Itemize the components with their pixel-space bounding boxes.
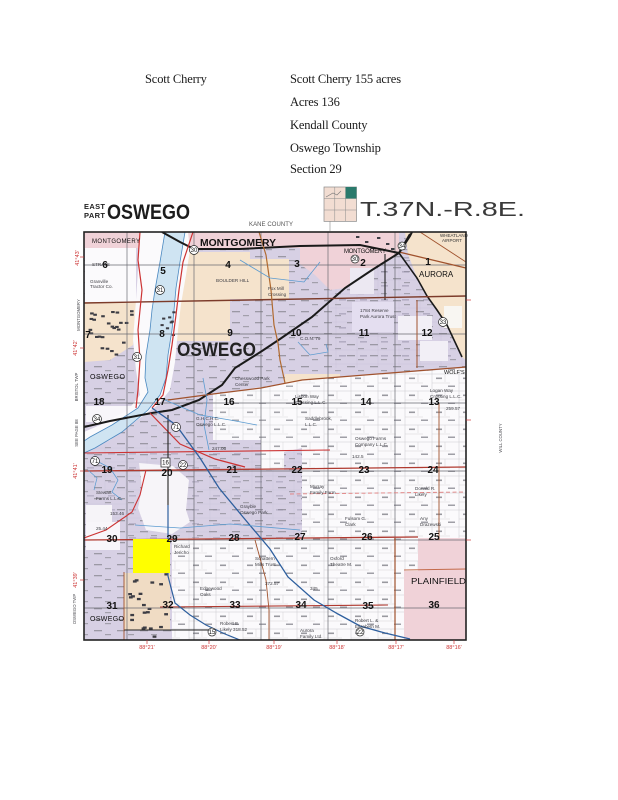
svg-text:PART: PART (84, 211, 105, 220)
svg-text:BOULDER HILL: BOULDER HILL (216, 278, 250, 283)
svg-text:88°16': 88°16' (446, 645, 462, 651)
svg-text:9: 9 (227, 328, 233, 339)
svg-text:26: 26 (361, 532, 373, 543)
svg-text:28: 28 (228, 533, 240, 544)
svg-text:Theatre M.: Theatre M. (330, 562, 352, 567)
svg-text:C.O.N. 79: C.O.N. 79 (300, 336, 321, 341)
svg-text:35: 35 (362, 601, 374, 612)
svg-text:34: 34 (399, 244, 406, 250)
svg-text:Fox Mill: Fox Mill (268, 286, 284, 291)
svg-text:Robert L. &: Robert L. & (355, 618, 378, 623)
svg-text:372.57: 372.57 (265, 581, 279, 586)
svg-text:OSWEGO TWP: OSWEGO TWP (72, 594, 77, 625)
svg-text:Any: Any (420, 516, 429, 521)
svg-text:WILL COUNTY: WILL COUNTY (498, 423, 503, 452)
svg-text:BRISTOL TWP: BRISTOL TWP (74, 372, 79, 401)
svg-text:EAST: EAST (84, 202, 105, 211)
svg-text:71: 71 (173, 425, 180, 431)
svg-text:Jericho: Jericho (174, 550, 189, 555)
svg-text:12: 12 (421, 328, 433, 339)
svg-text:Park Aurora Trust: Park Aurora Trust (360, 314, 396, 319)
svg-text:Center: Center (235, 382, 249, 387)
svg-text:23: 23 (358, 465, 370, 476)
svg-text:Oxford: Oxford (330, 556, 344, 561)
svg-text:7: 7 (85, 330, 91, 341)
svg-text:Stewart: Stewart (96, 490, 112, 495)
svg-text:Edgewood: Edgewood (200, 586, 222, 591)
svg-text:T.37N.-R.8E.: T.37N.-R.8E. (360, 199, 525, 221)
svg-text:31: 31 (134, 355, 141, 361)
svg-text:Logan Way: Logan Way (430, 388, 454, 393)
svg-text:31: 31 (106, 601, 118, 612)
svg-text:MONTGOMERY: MONTGOMERY (92, 239, 140, 245)
svg-text:4: 4 (225, 260, 231, 271)
svg-text:Crossing L.L.C.: Crossing L.L.C. (295, 400, 327, 405)
svg-text:Murray: Murray (310, 484, 325, 489)
svg-text:34: 34 (295, 600, 307, 611)
svg-text:Family Ltd.: Family Ltd. (300, 634, 322, 639)
svg-text:31: 31 (157, 288, 164, 294)
svg-text:25.44: 25.44 (96, 526, 108, 531)
svg-text:Family Farm: Family Farm (310, 490, 336, 495)
svg-text:L.L.C.: L.L.C. (305, 422, 317, 427)
svg-text:Saddlebrook,: Saddlebrook, (305, 416, 332, 421)
svg-text:16: 16 (223, 397, 235, 408)
svg-text:30: 30 (106, 534, 118, 545)
svg-text:Grayble: Grayble (240, 504, 257, 509)
svg-text:STRATS: STRATS (92, 262, 110, 267)
svg-text:Schattern: Schattern (255, 556, 275, 561)
svg-text:Tractor Co.: Tractor Co. (90, 284, 113, 289)
svg-text:Crossing L.L.C.: Crossing L.L.C. (430, 394, 462, 399)
svg-text:PLAINFIELD: PLAINFIELD (411, 577, 466, 586)
svg-text:247.06: 247.06 (212, 446, 226, 451)
svg-text:OSWEGO: OSWEGO (90, 616, 125, 623)
svg-text:25: 25 (428, 532, 440, 543)
svg-text:11: 11 (359, 328, 370, 339)
svg-text:34: 34 (94, 417, 101, 423)
svg-text:88°19': 88°19' (266, 645, 282, 651)
svg-text:259.57: 259.57 (446, 406, 460, 411)
svg-text:Oaks: Oaks (200, 592, 211, 597)
svg-text:Drazewski: Drazewski (420, 522, 441, 527)
svg-text:1784 Reserve: 1784 Reserve (360, 308, 389, 313)
svg-text:5: 5 (160, 266, 166, 277)
svg-text:Donald R.: Donald R. (415, 486, 435, 491)
svg-text:Oswego L.L.C.: Oswego L.L.C. (196, 422, 226, 427)
svg-text:KANE COUNTY: KANE COUNTY (249, 222, 293, 228)
svg-text:33: 33 (229, 600, 241, 611)
svg-text:OSWEGO: OSWEGO (177, 340, 256, 361)
svg-text:Lisbon Way: Lisbon Way (295, 394, 320, 399)
svg-text:OSWEGO: OSWEGO (90, 374, 126, 381)
svg-text:Robert E.: Robert E. (220, 621, 239, 626)
svg-text:1: 1 (425, 257, 431, 268)
svg-text:OSWEGO: OSWEGO (107, 201, 190, 224)
svg-text:Farms L.L.C.: Farms L.L.C. (96, 496, 123, 501)
svg-text:41°41': 41°41' (73, 463, 79, 479)
svg-text:71: 71 (92, 459, 99, 465)
svg-text:22: 22 (357, 630, 364, 636)
svg-text:SEE PAGE 88: SEE PAGE 88 (74, 419, 79, 447)
svg-text:153.46: 153.46 (110, 511, 124, 516)
svg-text:Likely: Likely (415, 492, 427, 497)
svg-text:MONTGOMERY: MONTGOMERY (344, 249, 386, 255)
svg-text:18: 18 (93, 397, 105, 408)
svg-text:WOLF'S: WOLF'S (444, 370, 465, 376)
svg-text:17: 17 (154, 397, 166, 408)
svg-text:88°17': 88°17' (388, 645, 404, 651)
svg-text:41°39': 41°39' (73, 572, 79, 588)
svg-text:Clark: Clark (345, 522, 356, 527)
svg-text:Chesswood Park: Chesswood Park (235, 376, 270, 381)
svg-text:30: 30 (352, 257, 359, 263)
svg-text:88°21': 88°21' (139, 645, 155, 651)
svg-text:Richard: Richard (174, 544, 190, 549)
svg-text:22: 22 (180, 463, 187, 469)
svg-text:32: 32 (162, 600, 174, 611)
svg-text:MONTGOMERY: MONTGOMERY (200, 238, 276, 249)
svg-text:Company L.L.C.: Company L.L.C. (355, 442, 388, 447)
svg-text:Oswego Park: Oswego Park (240, 510, 268, 515)
svg-text:41°42': 41°42' (73, 340, 79, 356)
svg-text:33: 33 (440, 320, 447, 326)
svg-text:142.5: 142.5 (352, 454, 364, 459)
svg-text:Aurora: Aurora (300, 628, 314, 633)
svg-text:2: 2 (360, 258, 366, 269)
svg-text:88°18': 88°18' (329, 645, 345, 651)
svg-text:345: 345 (310, 586, 318, 591)
svg-text:88°20': 88°20' (201, 645, 217, 651)
svg-text:20: 20 (161, 468, 173, 479)
svg-text:22: 22 (291, 465, 303, 476)
svg-text:AIRPORT: AIRPORT (442, 238, 462, 243)
svg-text:21: 21 (226, 465, 238, 476)
svg-text:30: 30 (191, 248, 198, 254)
svg-text:27: 27 (294, 532, 306, 543)
svg-text:36: 36 (428, 600, 440, 611)
svg-text:Fulsom G.: Fulsom G. (345, 516, 366, 521)
svg-text:19: 19 (101, 465, 113, 476)
svg-text:Crossing: Crossing (268, 292, 287, 297)
svg-text:Likely 318.52: Likely 318.52 (220, 627, 248, 632)
svg-text:8: 8 (159, 329, 165, 340)
svg-text:14: 14 (360, 397, 372, 408)
svg-text:15: 15 (209, 630, 216, 636)
svg-text:Mills Trust: Mills Trust (255, 562, 276, 567)
svg-text:G.H.C.H.C.: G.H.C.H.C. (196, 416, 219, 421)
svg-text:AURORA: AURORA (419, 270, 454, 279)
svg-text:24: 24 (427, 465, 439, 476)
svg-text:MONTGOMERY: MONTGOMERY (76, 299, 81, 331)
svg-text:16: 16 (162, 461, 169, 467)
svg-text:3: 3 (294, 259, 300, 270)
svg-text:41°43': 41°43' (75, 250, 81, 266)
svg-text:Oswego Farms: Oswego Farms (355, 436, 387, 441)
